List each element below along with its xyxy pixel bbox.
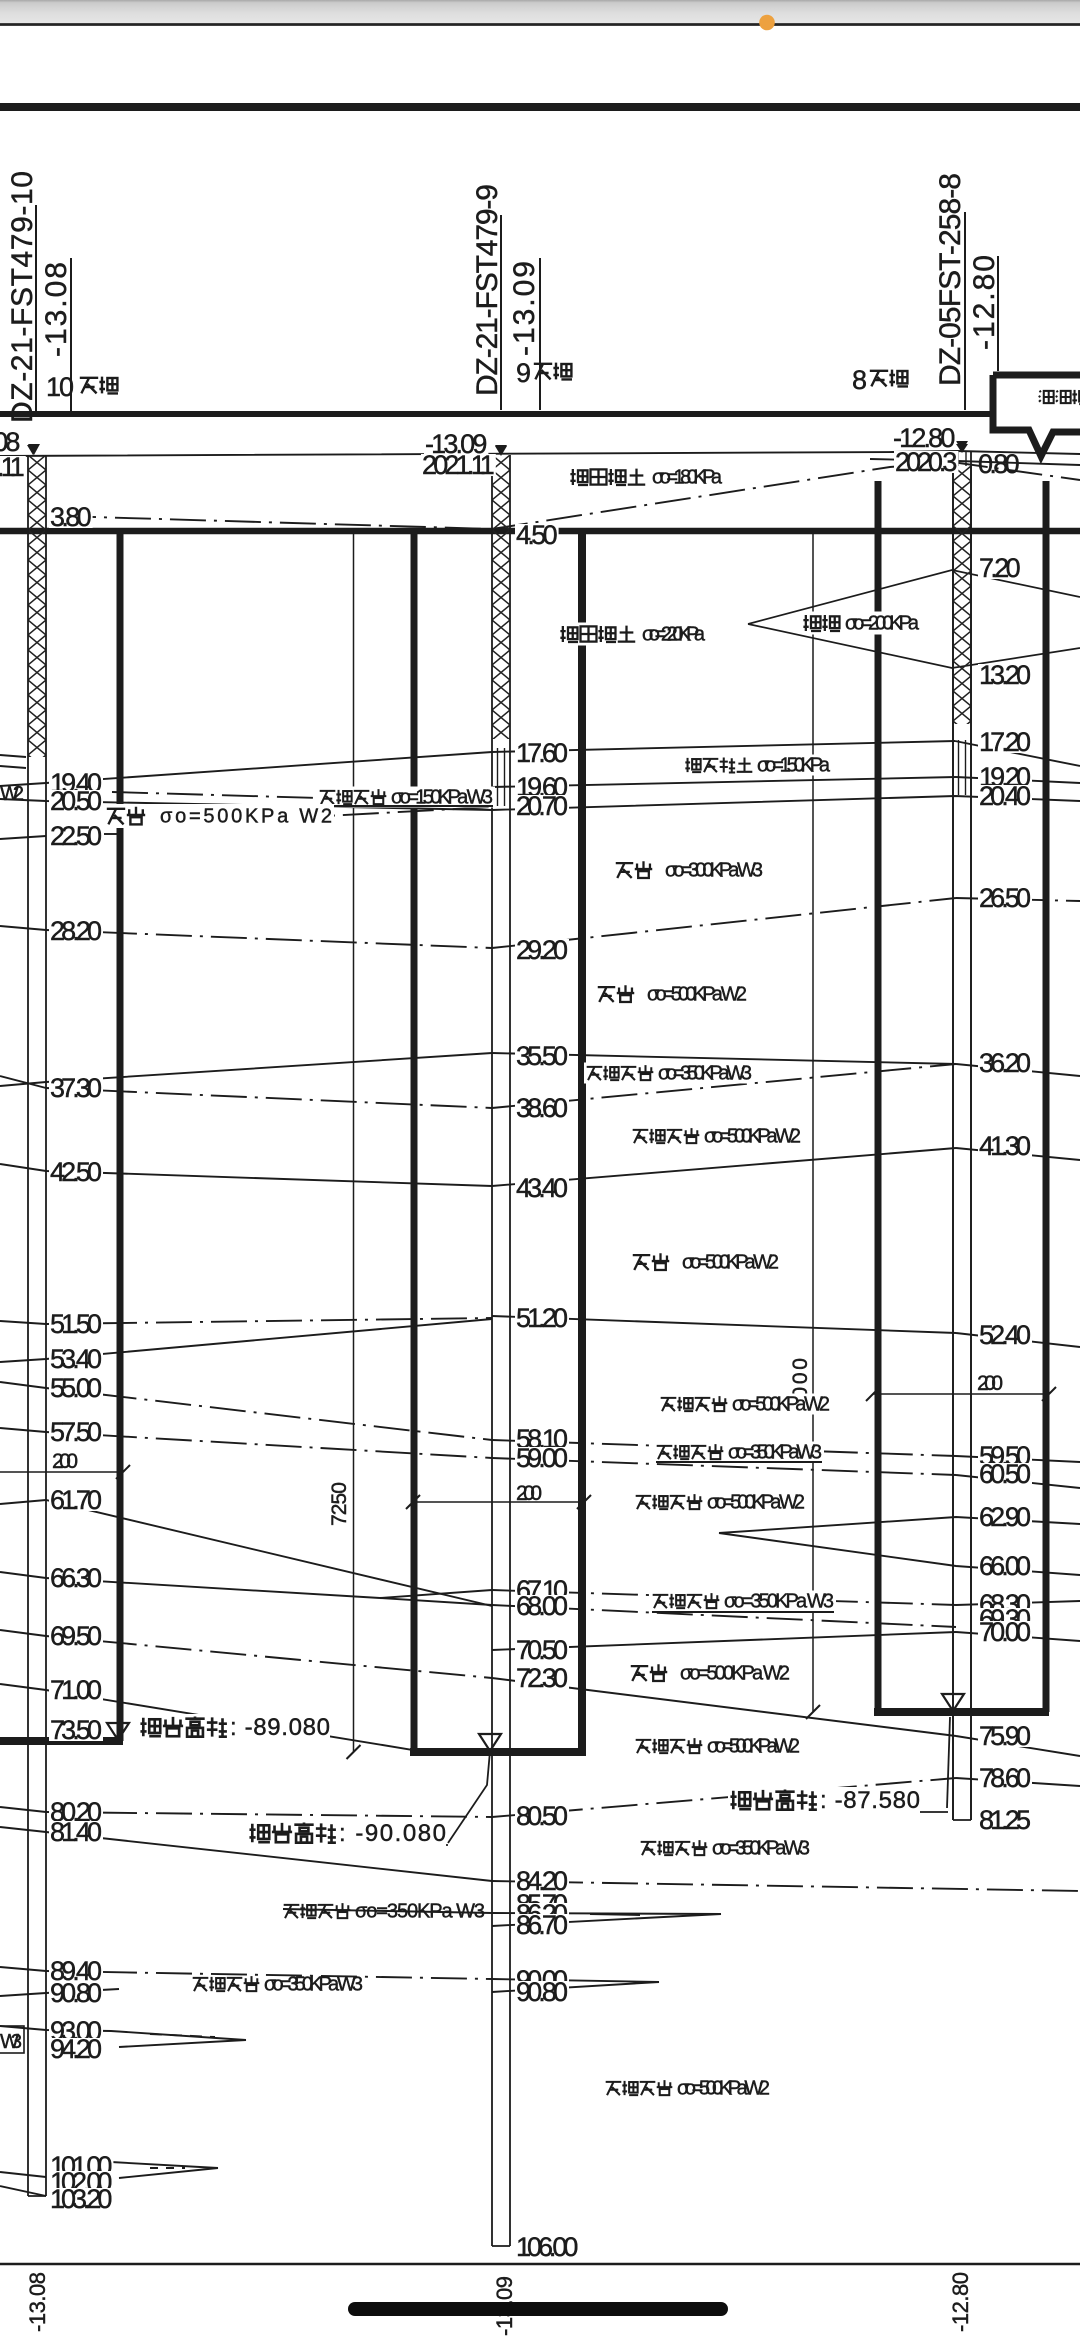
svg-text:0.80: 0.80 — [978, 449, 1020, 479]
svg-text:66.00: 66.00 — [979, 1551, 1031, 1581]
svg-text:20.40: 20.40 — [979, 781, 1031, 811]
svg-text:41.30: 41.30 — [979, 1131, 1031, 1161]
svg-text:σo=350KPa W3: σo=350KPa W3 — [658, 1063, 752, 1085]
svg-text:σo=350KPa W3: σo=350KPa W3 — [724, 1591, 834, 1613]
svg-text:W3: W3 — [0, 2031, 22, 2053]
svg-text:66.30: 66.30 — [50, 1563, 102, 1593]
svg-text:29.20: 29.20 — [516, 935, 568, 965]
svg-text:37.30: 37.30 — [50, 1073, 102, 1103]
svg-text:62.90: 62.90 — [979, 1502, 1031, 1532]
svg-text:75.90: 75.90 — [979, 1721, 1031, 1751]
svg-text:2021.11: 2021.11 — [422, 450, 495, 480]
svg-text:2021.11: 2021.11 — [0, 452, 25, 482]
svg-text:43.40: 43.40 — [516, 1173, 568, 1203]
svg-text:61.70: 61.70 — [50, 1485, 102, 1515]
svg-text:57.50: 57.50 — [50, 1417, 102, 1447]
svg-text:90.80: 90.80 — [50, 1978, 102, 2008]
svg-text:4.50: 4.50 — [516, 520, 558, 550]
svg-text:σo=200KPa: σo=200KPa — [845, 613, 920, 635]
svg-text:68.00: 68.00 — [516, 1591, 568, 1621]
svg-text:69.50: 69.50 — [50, 1621, 102, 1651]
svg-text:σo=180KPa: σo=180KPa — [652, 467, 723, 489]
svg-text:17.20: 17.20 — [979, 727, 1031, 757]
svg-text:72.30: 72.30 — [516, 1663, 568, 1693]
svg-text:: -90.080: : -90.080 — [339, 1820, 446, 1847]
svg-text:70.00: 70.00 — [979, 1617, 1031, 1647]
svg-text:53.40: 53.40 — [50, 1344, 102, 1374]
svg-text:W2: W2 — [0, 783, 24, 805]
svg-text:7.20: 7.20 — [979, 553, 1021, 583]
svg-text:106.00: 106.00 — [516, 2232, 578, 2262]
svg-text:17.60: 17.60 — [516, 738, 568, 768]
svg-text:20.50: 20.50 — [50, 786, 102, 816]
svg-text:-12.80: -12.80 — [948, 2272, 973, 2332]
svg-text:86.70: 86.70 — [516, 1910, 568, 1940]
svg-text:71.00: 71.00 — [50, 1675, 102, 1705]
svg-text:σo=500KPa W2: σo=500KPa W2 — [160, 806, 332, 828]
svg-text:DZ-05FST-258-8: DZ-05FST-258-8 — [934, 173, 967, 386]
svg-text:DZ-21-FST479-10: DZ-21-FST479-10 — [6, 171, 39, 423]
svg-text:26.50: 26.50 — [979, 883, 1031, 913]
svg-text:200: 200 — [516, 1482, 542, 1505]
svg-text:σo=500KPa W2: σo=500KPa W2 — [647, 984, 747, 1006]
svg-text:8: 8 — [852, 365, 867, 395]
svg-text:σo=350KPa W3: σo=350KPa W3 — [355, 1901, 485, 1923]
svg-text:70.50: 70.50 — [516, 1635, 568, 1665]
svg-text:σo=500KPa W2: σo=500KPa W2 — [707, 1736, 800, 1758]
svg-text:22.50: 22.50 — [50, 821, 102, 851]
svg-text:σo=220KPa: σo=220KPa — [642, 624, 706, 646]
svg-text:81.40: 81.40 — [50, 1817, 102, 1847]
svg-text:: -87.580: : -87.580 — [820, 1787, 920, 1814]
svg-text:60.50: 60.50 — [979, 1459, 1031, 1489]
svg-text:28.20: 28.20 — [50, 916, 102, 946]
svg-text:σo=150KPa: σo=150KPa — [757, 755, 831, 777]
svg-text:94.20: 94.20 — [50, 2034, 102, 2064]
svg-text:σo=350KPa W3: σo=350KPa W3 — [264, 1974, 363, 1996]
svg-text:σo=500KPa W2: σo=500KPa W2 — [704, 1126, 801, 1148]
svg-text:36.20: 36.20 — [979, 1048, 1031, 1078]
svg-text:σo=500KPa W2: σo=500KPa W2 — [677, 2078, 770, 2100]
svg-text:200: 200 — [977, 1372, 1003, 1395]
svg-text:2020.3: 2020.3 — [895, 447, 957, 477]
svg-text:38.60: 38.60 — [516, 1093, 568, 1123]
svg-text:103.20: 103.20 — [50, 2184, 112, 2214]
svg-text:σo=500KPa W2: σo=500KPa W2 — [732, 1394, 830, 1416]
svg-text:3.80: 3.80 — [50, 502, 92, 532]
svg-text:200: 200 — [52, 1450, 78, 1473]
svg-text:7250: 7250 — [328, 1482, 351, 1526]
svg-text:σo=300KPa W3: σo=300KPa W3 — [665, 860, 763, 882]
svg-text:σo=500KPa W2: σo=500KPa W2 — [680, 1663, 790, 1685]
svg-text:52.40: 52.40 — [979, 1320, 1031, 1350]
svg-text:DZ-21-FST479-9: DZ-21-FST479-9 — [471, 184, 504, 396]
svg-text:51.20: 51.20 — [516, 1303, 568, 1333]
svg-text:73.50: 73.50 — [50, 1715, 102, 1745]
svg-text:9: 9 — [516, 358, 531, 388]
svg-text:σo=350KPa W3: σo=350KPa W3 — [712, 1838, 810, 1860]
svg-text:σo=350KPa W3: σo=350KPa W3 — [728, 1442, 822, 1464]
svg-text:20.70: 20.70 — [516, 791, 568, 821]
svg-text:10: 10 — [46, 372, 74, 402]
svg-text:42.50: 42.50 — [50, 1157, 102, 1187]
svg-text:78.60: 78.60 — [979, 1763, 1031, 1793]
svg-text:59.00: 59.00 — [516, 1443, 568, 1473]
svg-text:-13.08: -13.08 — [25, 2272, 50, 2332]
svg-text:81.25: 81.25 — [979, 1805, 1031, 1835]
svg-text:90.80: 90.80 — [516, 1977, 568, 2007]
svg-text:80.50: 80.50 — [516, 1801, 568, 1831]
svg-text:55.00: 55.00 — [50, 1373, 102, 1403]
svg-text:σo=500KPa W2: σo=500KPa W2 — [682, 1252, 779, 1274]
svg-text:σo=500KPa W2: σo=500KPa W2 — [707, 1492, 805, 1514]
svg-text:35.50: 35.50 — [516, 1041, 568, 1071]
svg-text:13.20: 13.20 — [979, 660, 1031, 690]
svg-text:51.50: 51.50 — [50, 1309, 102, 1339]
svg-text:: -89.080: : -89.080 — [230, 1714, 330, 1741]
